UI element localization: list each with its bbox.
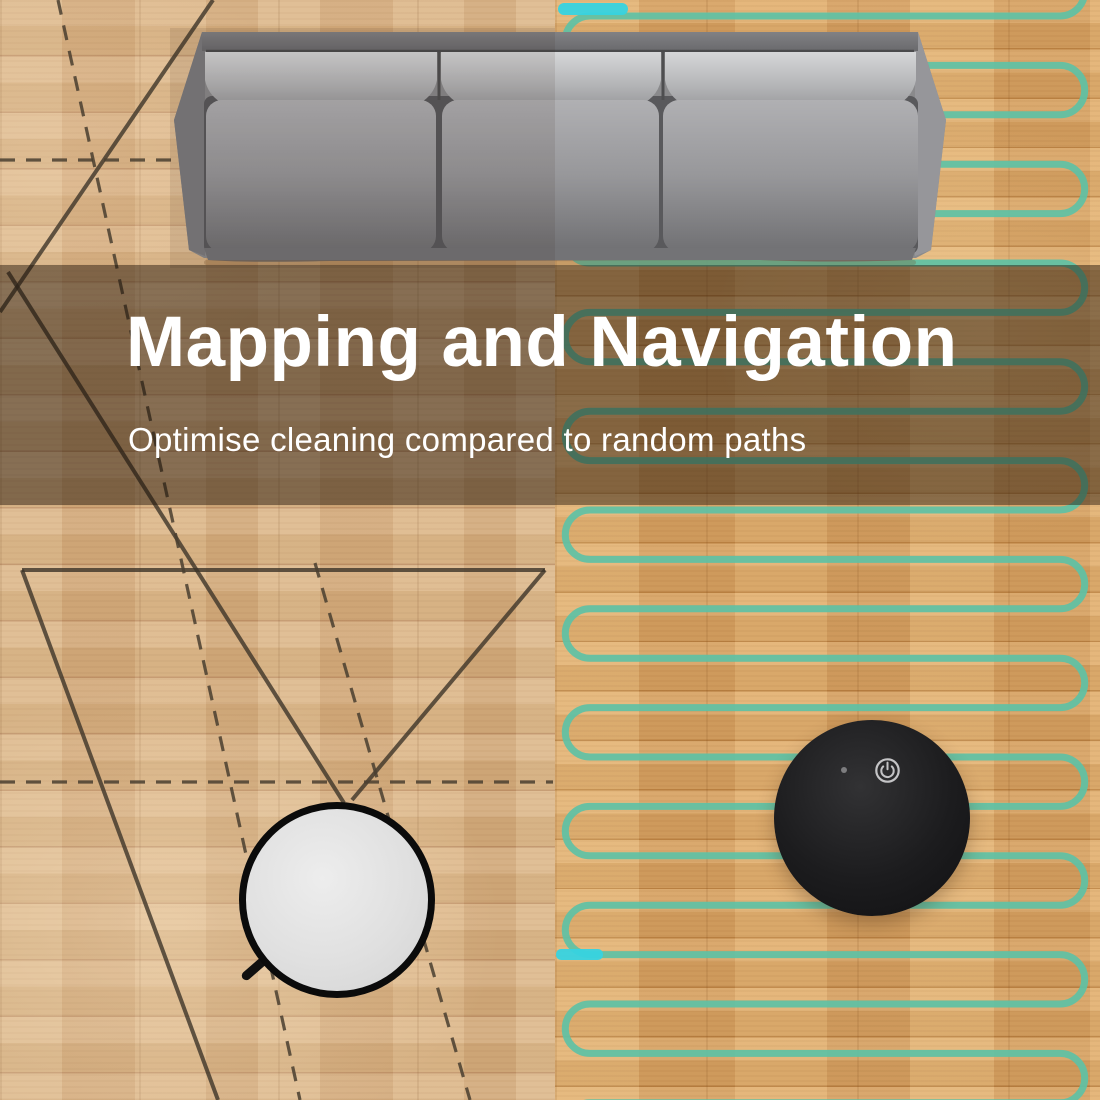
power-icon [874, 757, 901, 784]
product-marketing-scene: Mapping and Navigation Optimise cleaning… [0, 0, 1100, 1100]
random-path-robot [239, 802, 435, 998]
status-led-dot [841, 767, 847, 773]
sofa-left-dim-overlay [170, 28, 555, 268]
sofa-right-arm [915, 32, 946, 256]
banner-title: Mapping and Navigation [126, 307, 1100, 378]
title-banner: Mapping and Navigation Optimise cleaning… [0, 265, 1100, 505]
mapping-robot [774, 720, 970, 916]
banner-subtitle: Optimise cleaning compared to random pat… [128, 423, 1100, 456]
sofa-top-view [0, 0, 1100, 1100]
sofa [170, 28, 946, 268]
sofa-seat-cushion-3 [663, 100, 918, 252]
